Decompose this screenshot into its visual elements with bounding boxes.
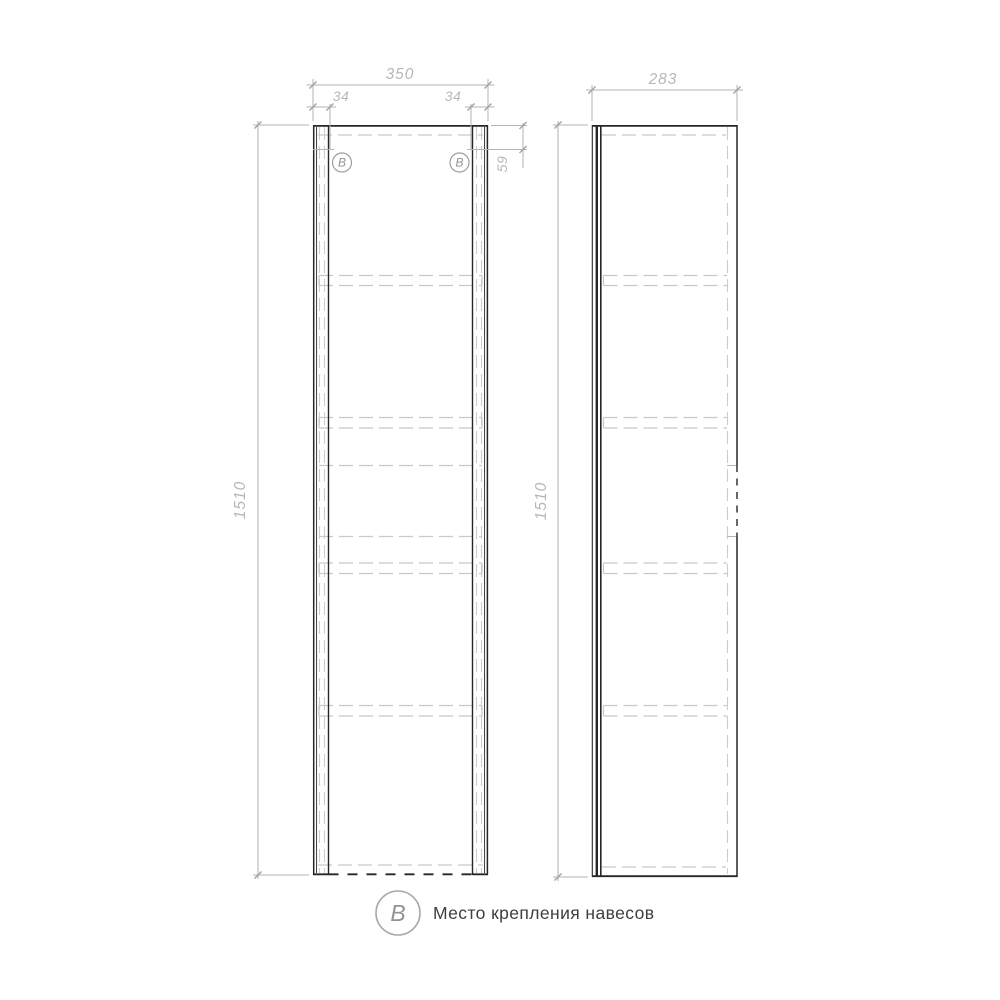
hole-offset-right-value: 34 xyxy=(445,88,462,104)
front-width-value: 350 xyxy=(386,66,415,83)
side-height-value: 1510 xyxy=(533,482,550,520)
legend-label: Место крепления навесов xyxy=(433,903,654,923)
mount-balloon-left-label: B xyxy=(338,156,346,170)
drawing-canvas: B B 350 34 34 59 1510 xyxy=(0,0,1000,1000)
legend-balloon-symbol: B xyxy=(390,900,405,926)
mount-balloon-right-label: B xyxy=(455,156,463,170)
hole-offset-left-value: 34 xyxy=(333,88,350,104)
side-depth-value: 283 xyxy=(648,71,678,88)
front-height-value: 1510 xyxy=(232,481,249,519)
hole-vertical-offset-value: 59 xyxy=(494,156,510,173)
cabinet-technical-drawing: B B 350 34 34 59 1510 xyxy=(0,0,1000,1000)
